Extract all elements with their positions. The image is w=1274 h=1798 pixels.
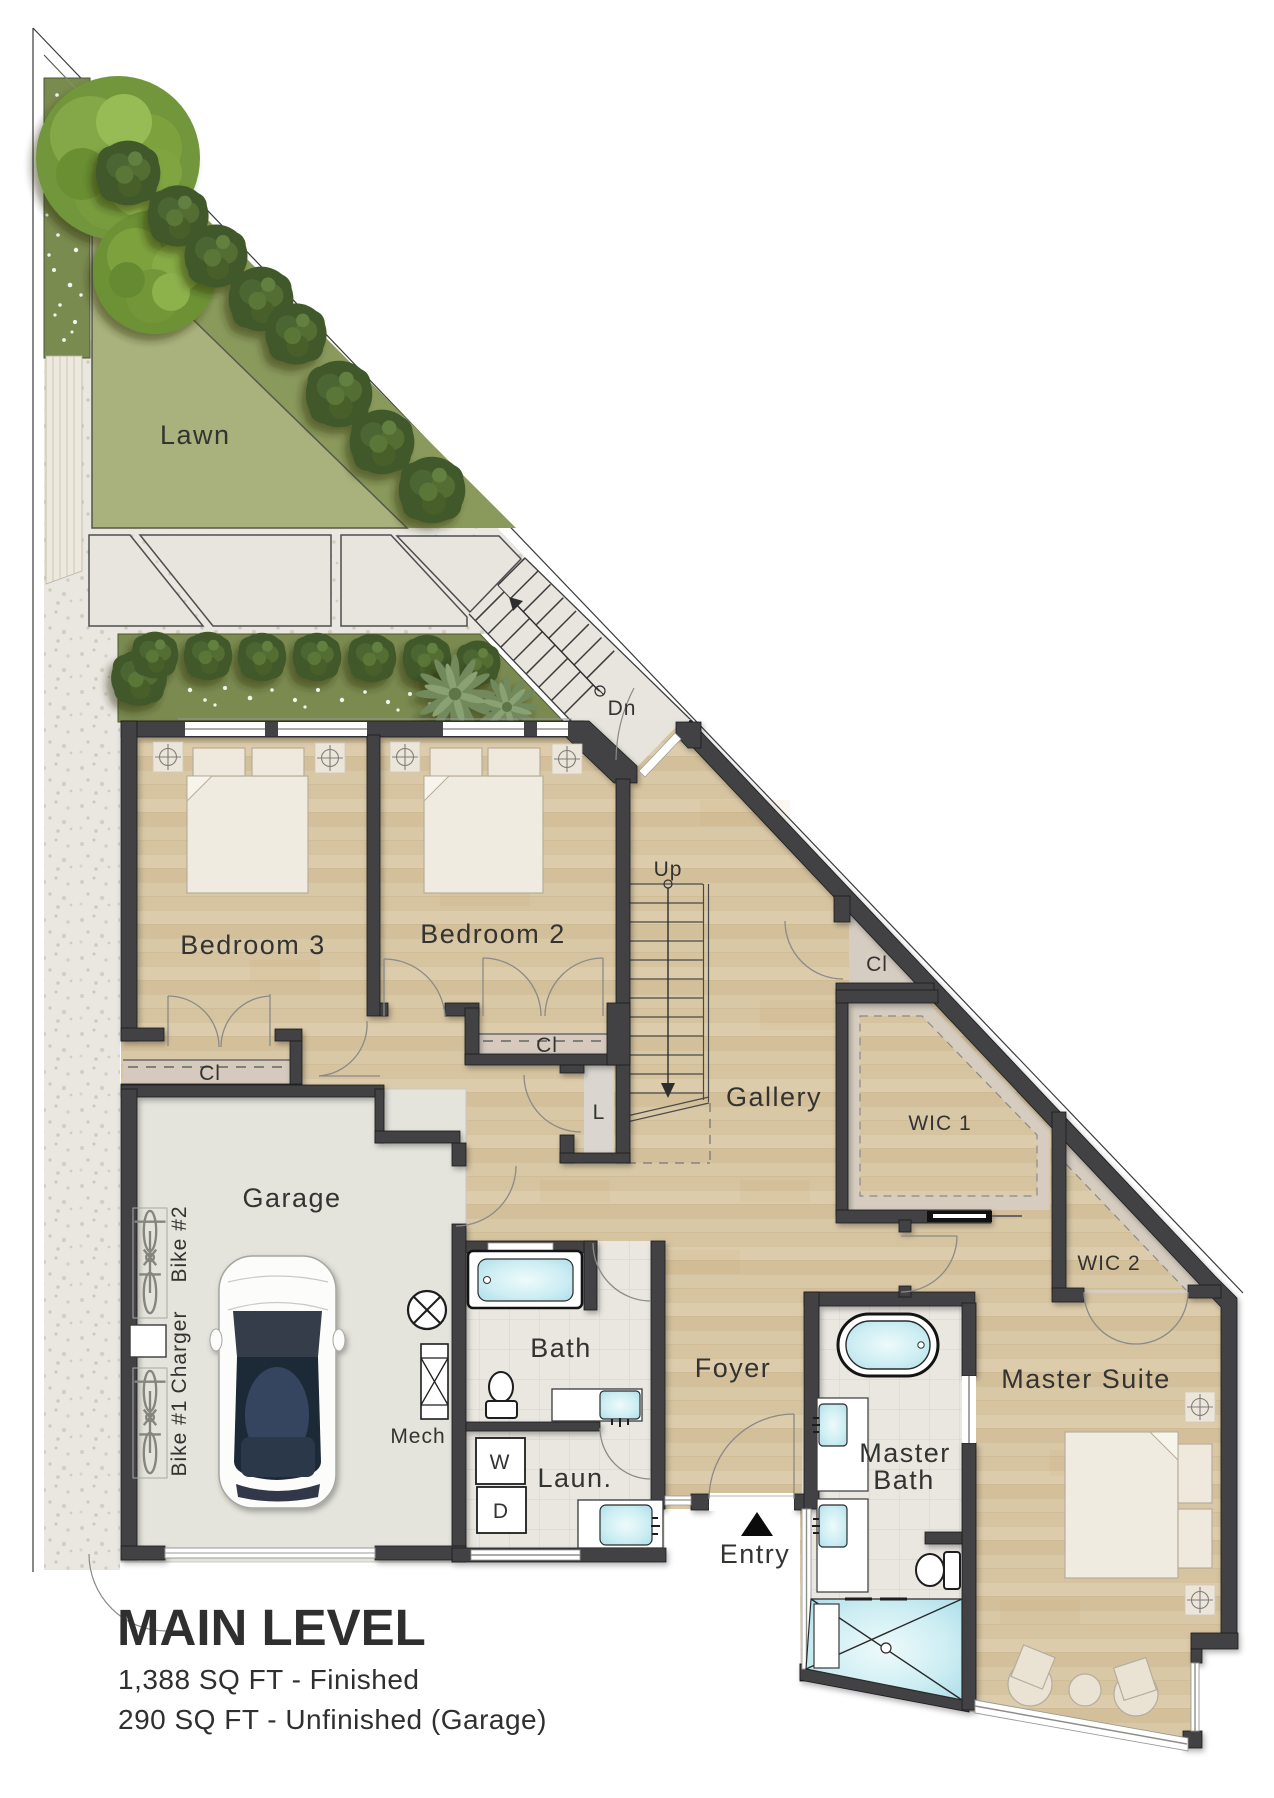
- svg-text:MAIN LEVEL: MAIN LEVEL: [117, 1599, 426, 1656]
- svg-text:Up: Up: [654, 858, 683, 881]
- svg-text:WIC 1: WIC 1: [908, 1112, 971, 1135]
- svg-text:WIC 2: WIC 2: [1077, 1252, 1140, 1275]
- svg-text:Gallery: Gallery: [726, 1082, 822, 1112]
- svg-text:L: L: [593, 1101, 606, 1124]
- svg-text:Laun.: Laun.: [537, 1463, 612, 1493]
- svg-text:Bedroom 3: Bedroom 3: [180, 930, 326, 960]
- svg-text:Foyer: Foyer: [695, 1353, 772, 1383]
- svg-text:Cl: Cl: [866, 953, 888, 976]
- svg-text:Bedroom 2: Bedroom 2: [420, 919, 566, 949]
- svg-text:Lawn: Lawn: [160, 420, 231, 450]
- svg-text:Dn: Dn: [608, 697, 637, 720]
- svg-text:Bike #2: Bike #2: [168, 1205, 191, 1282]
- svg-text:Bike #1: Bike #1: [168, 1399, 191, 1476]
- svg-text:Master Suite: Master Suite: [1001, 1364, 1171, 1394]
- svg-text:Garage: Garage: [242, 1183, 341, 1213]
- svg-text:Charger: Charger: [168, 1311, 191, 1394]
- svg-text:290 SQ FT - Unfinished (Garage: 290 SQ FT - Unfinished (Garage): [118, 1704, 547, 1735]
- svg-text:Master: Master: [859, 1438, 951, 1468]
- svg-text:D: D: [493, 1500, 509, 1523]
- svg-text:Cl: Cl: [536, 1034, 558, 1057]
- svg-text:Cl: Cl: [199, 1062, 221, 1085]
- svg-text:W: W: [490, 1451, 511, 1474]
- svg-text:Mech: Mech: [390, 1425, 445, 1448]
- svg-text:1,388 SQ FT - Finished: 1,388 SQ FT - Finished: [118, 1664, 420, 1695]
- svg-text:Entry: Entry: [720, 1539, 791, 1569]
- svg-text:Bath: Bath: [530, 1333, 592, 1363]
- svg-text:Bath: Bath: [873, 1465, 935, 1495]
